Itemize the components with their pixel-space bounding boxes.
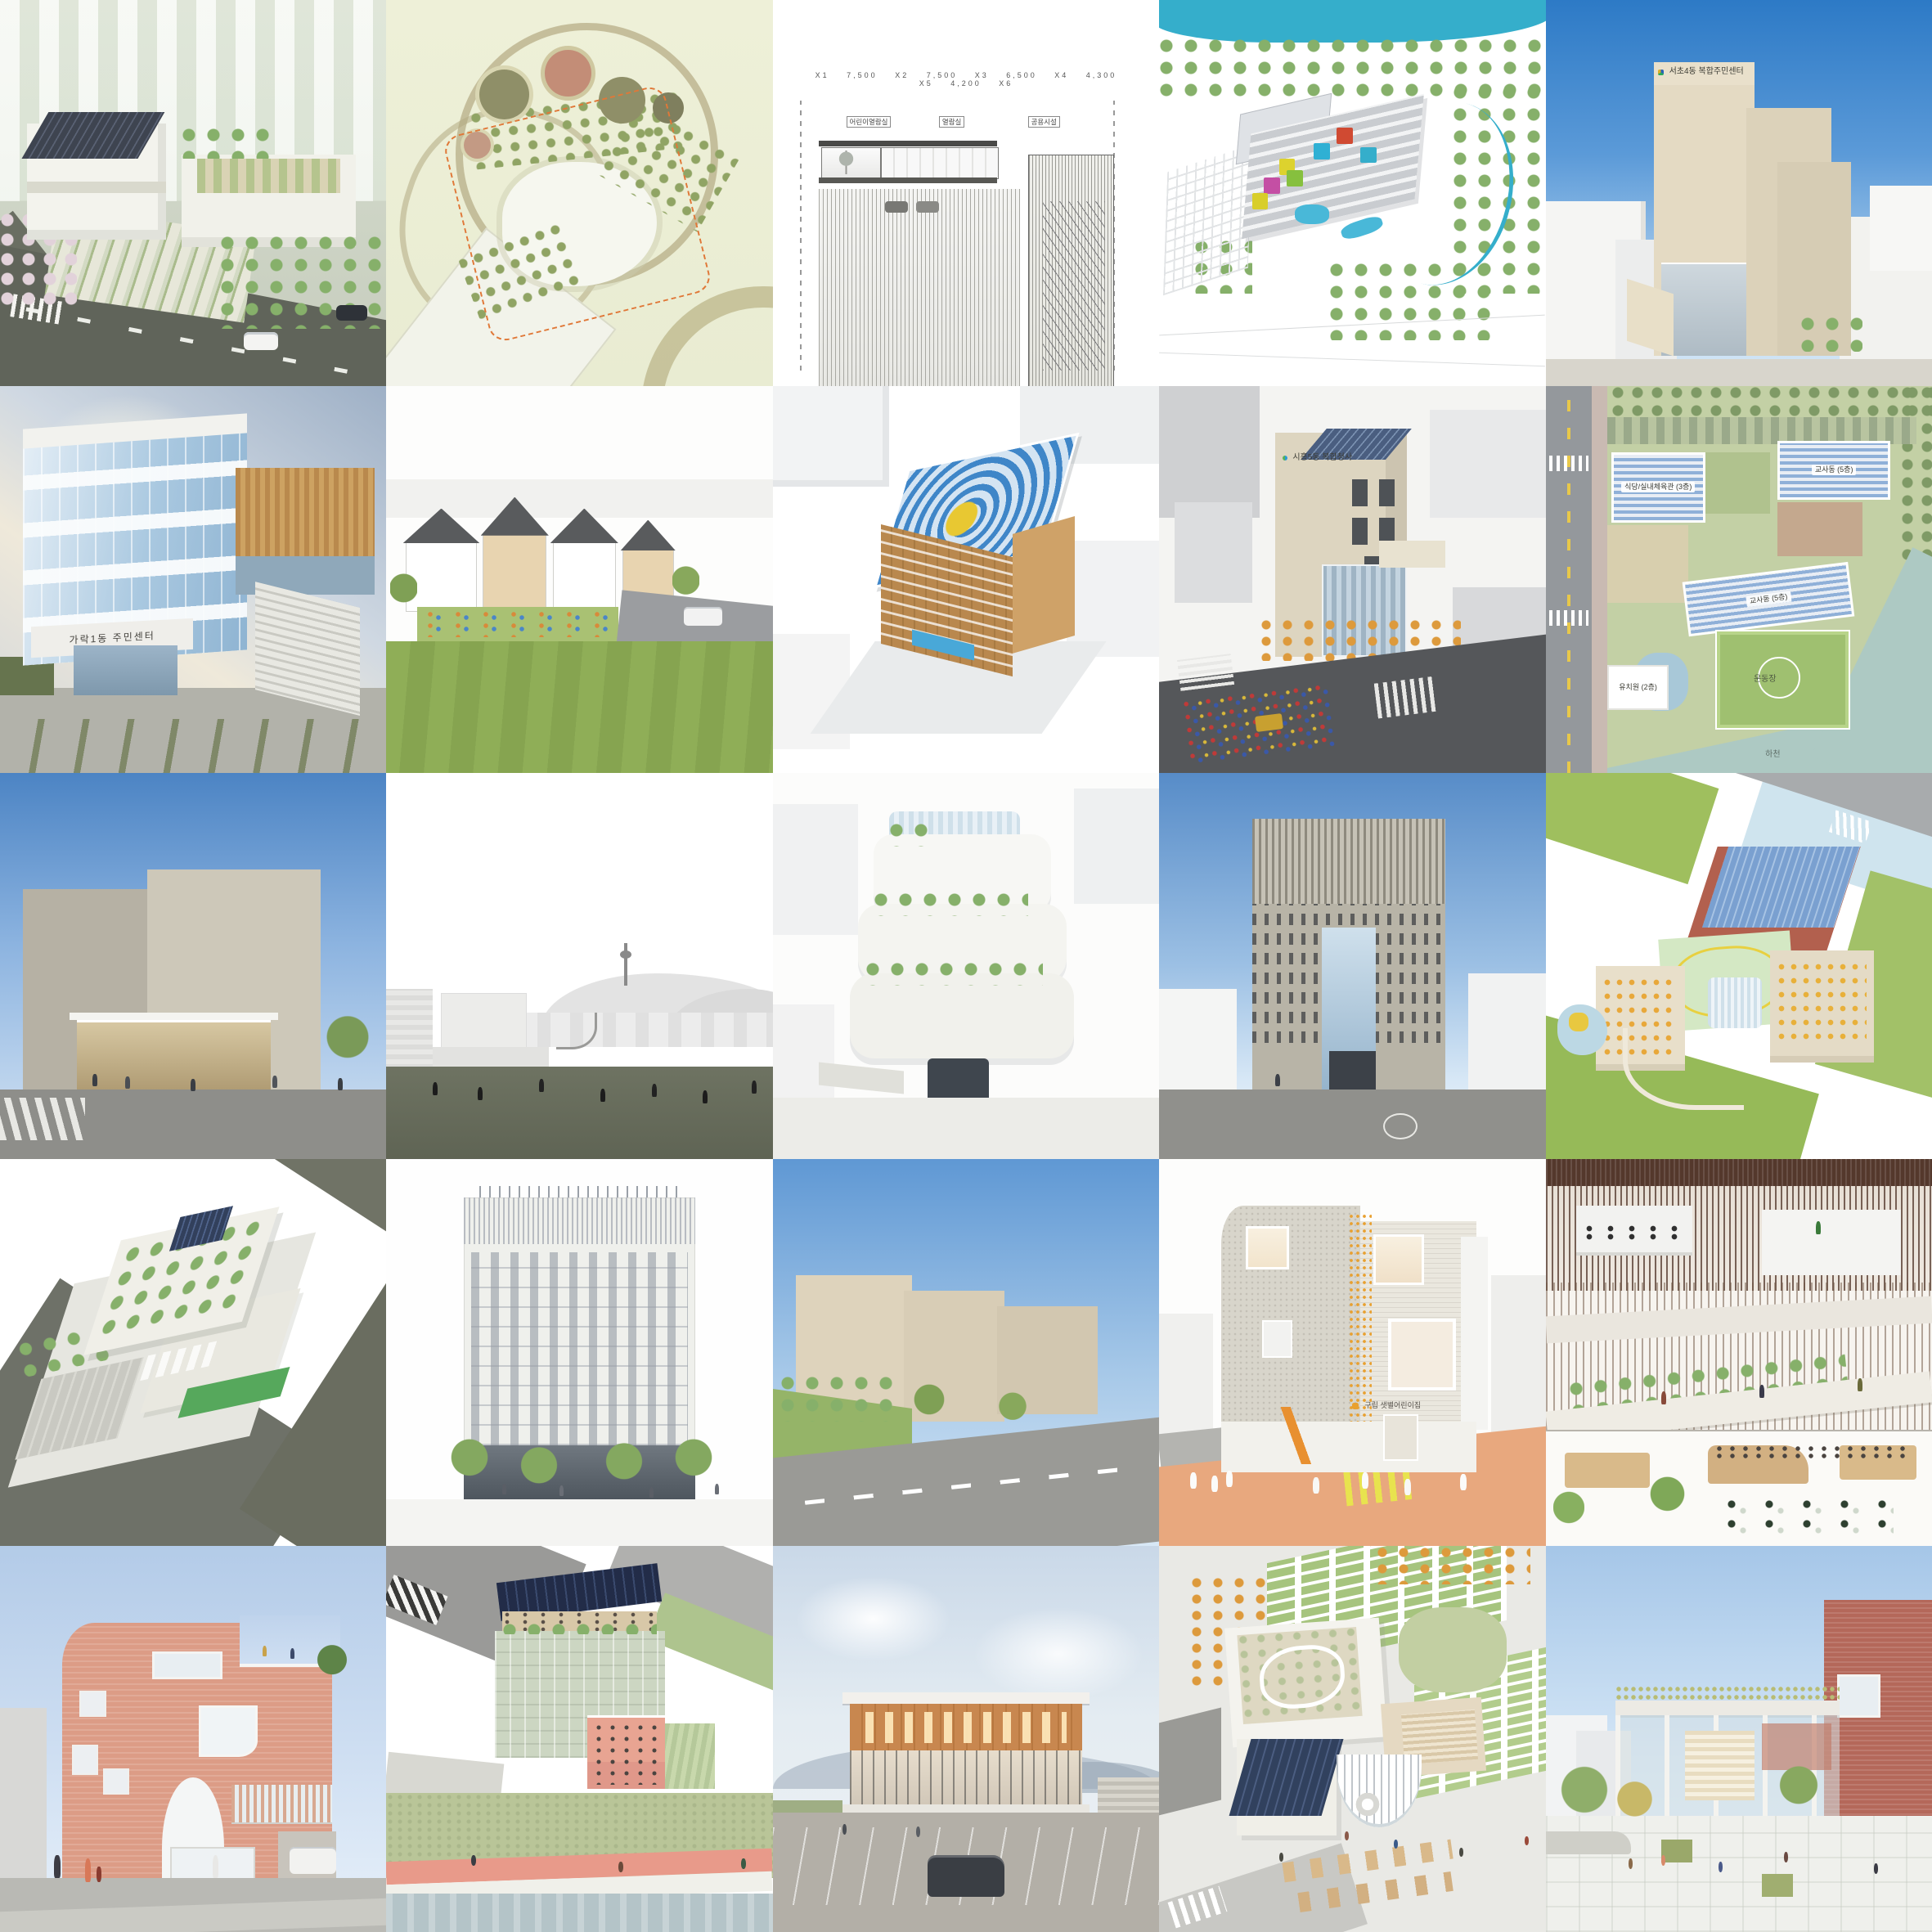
- tile-r1c2-park-masterplan: [386, 0, 772, 386]
- terrace-planting: [889, 823, 928, 846]
- context-block: [773, 1004, 835, 1105]
- floor-slab: [819, 177, 996, 183]
- play-yard: [1704, 452, 1769, 514]
- context-block: [773, 804, 858, 936]
- parked-car-lineart: [916, 201, 939, 213]
- entrance-door: [1383, 1414, 1418, 1461]
- tree: [997, 1391, 1028, 1434]
- cafe-tables: [595, 1723, 660, 1786]
- district-logo-icon: [1658, 70, 1664, 75]
- pedestrian: [54, 1855, 61, 1878]
- classroom-building: 교사동 (5층): [1777, 441, 1890, 500]
- cloud: [796, 1576, 950, 1661]
- white-car: [290, 1847, 336, 1874]
- play-lawn: [386, 1067, 772, 1159]
- street-trees: [1800, 317, 1862, 352]
- tile-r1c3-section-drawing: X1 7,500 X2 7,500 X3 6,500 X4 4,300 X5 4…: [773, 0, 1159, 386]
- label-field: 운동장: [1750, 671, 1780, 685]
- parked-car-lineart: [885, 201, 908, 213]
- terrace-deck: [1379, 541, 1445, 568]
- gabled-house-wood: [483, 533, 546, 612]
- pedestrian: [213, 1855, 219, 1878]
- planter-wall: [1546, 1831, 1631, 1854]
- terrace-planting: [874, 892, 1028, 915]
- building-sign-text: 구립 샛별어린이집: [1361, 1400, 1424, 1411]
- terrace-tree: [317, 1642, 348, 1681]
- green-paving-square: [1762, 1874, 1793, 1897]
- white-figure-silhouettes: [1190, 1472, 1197, 1489]
- dark-slat-header: [1546, 1159, 1932, 1186]
- label-cafeteria: 식당/실내체육관 (3층): [1621, 482, 1695, 492]
- label-river-text: 하천: [1762, 749, 1783, 760]
- tile-r5c3-symmetric-cultural-center: [773, 1546, 1159, 1932]
- entrance-canopy: [70, 1013, 278, 1020]
- planter-band: [502, 1623, 657, 1634]
- tree: [912, 1383, 947, 1430]
- autumn-trees: [1376, 1546, 1530, 1584]
- tree: [518, 1445, 560, 1495]
- context-block: [1491, 1275, 1545, 1445]
- label-classroom-b: 교사동 (5층): [1746, 591, 1791, 607]
- green-terrace-steps: [665, 1723, 715, 1789]
- tile-r5c2-riverfront-green-building: [386, 1546, 772, 1932]
- checkered-green-roof: [197, 159, 340, 194]
- magenta-container: [1264, 177, 1280, 194]
- pavilion-roof-slab: [1615, 1701, 1840, 1716]
- perimeter-trees: [1592, 386, 1932, 421]
- curved-bay-window: [201, 1708, 255, 1755]
- window: [1248, 1229, 1287, 1267]
- verge-trees: [780, 1376, 896, 1422]
- crosswalk: [1549, 610, 1588, 626]
- ground-line: [1159, 353, 1545, 366]
- program-node: [545, 50, 591, 97]
- center-line: [1567, 386, 1571, 772]
- pedestrian: [1275, 1074, 1280, 1086]
- play-equipment-dots: [425, 610, 611, 637]
- building-sign-text: 가락1동 주민센터: [65, 628, 158, 646]
- wood-side-facade: [1013, 517, 1075, 654]
- tile-r3c5-kindergarten-axon: [1546, 773, 1932, 1159]
- tile-r1c4-container-campus-aerial: [1159, 0, 1545, 386]
- room-label-reading: 열람실: [939, 116, 964, 128]
- tile-r4c3-brick-housing-street: [773, 1159, 1159, 1545]
- grid-axis-dimensions: X1 7,500 X2 7,500 X3 6,500 X4 4,300 X5 4…: [804, 71, 1129, 88]
- balcony-railing: [231, 1785, 332, 1823]
- black-car: [336, 305, 367, 321]
- crosswalk: [1549, 456, 1588, 471]
- roof-frames: [479, 1186, 681, 1197]
- tile-r4c5-slat-section-interior: [1546, 1159, 1932, 1545]
- tile-r4c4-cube-daycare: 구립 샛별어린이집: [1159, 1159, 1545, 1545]
- street: [1159, 1090, 1545, 1159]
- building-sign: 서초4동 복합주민센터: [1658, 66, 1747, 78]
- tile-r5c1-salmon-brick-building: [0, 1546, 386, 1932]
- tile-r4c2-slatted-elevation: [386, 1159, 772, 1545]
- courtyard: [1777, 502, 1862, 556]
- white-car: [244, 332, 279, 349]
- sidewalk: [1546, 359, 1932, 386]
- building-sign: 시흥5동 복합청사: [1283, 452, 1355, 464]
- tile-r1c1-civic-complex-aerial: [0, 0, 386, 386]
- tile-r2c3-wood-axon-mural-roof: [773, 386, 1159, 772]
- cyclists: [471, 1855, 476, 1866]
- children-silhouettes: [433, 1082, 438, 1095]
- facade-band: [27, 182, 166, 193]
- screen-facade-hatch: [819, 189, 1020, 386]
- window-grid: [471, 1252, 688, 1445]
- foreground-lawn: [386, 641, 772, 773]
- sidewalk: [386, 1499, 772, 1546]
- context-block: [1074, 789, 1159, 905]
- crosswalk: [1177, 654, 1234, 691]
- terrace-planting: [865, 962, 1043, 985]
- context-building: [1870, 186, 1932, 271]
- wood-counter: [1565, 1453, 1650, 1488]
- white-car: [684, 607, 722, 627]
- pedestrian: [85, 1858, 92, 1881]
- brick-screen-wall: [386, 989, 433, 1074]
- namsan-tower-deck: [620, 950, 631, 959]
- play-structure: [1569, 1013, 1588, 1032]
- lawn-mound: [1399, 1607, 1507, 1692]
- river-water: [386, 1894, 772, 1932]
- blue-play-pool: [1295, 204, 1330, 224]
- interior-tree-lineart: [838, 151, 854, 173]
- building-sign-text: 서초4동 복합주민센터: [1666, 66, 1747, 78]
- entrance-void: [928, 1058, 990, 1097]
- glass-base: [850, 1750, 1081, 1804]
- building-sign: 구립 샛별어린이집: [1352, 1400, 1424, 1411]
- entrance: [1329, 1051, 1376, 1090]
- red-container: [1337, 128, 1353, 144]
- room-label-shared: 공용시설: [1028, 116, 1060, 128]
- tree: [1553, 1491, 1584, 1538]
- vertical-louvre-crown: [1252, 819, 1445, 904]
- kindergarten-building: 유치원 (2층): [1607, 665, 1669, 711]
- window: [105, 1770, 128, 1793]
- label-field-text: 운동장: [1750, 674, 1780, 685]
- window: [1352, 518, 1368, 545]
- orange-window-frames: [1777, 962, 1867, 1047]
- upper-walkway: [1762, 1210, 1901, 1275]
- tile-r3c4-louvre-crown-building: [1159, 773, 1545, 1159]
- roof-slab: [819, 141, 996, 146]
- outdoor-tables: [1723, 1499, 1894, 1534]
- upper-glazing: [881, 147, 999, 180]
- window: [1264, 1322, 1291, 1357]
- window: [1352, 479, 1368, 506]
- tile-r3c3-white-curved-terraces: [773, 773, 1159, 1159]
- glass-base: [464, 1445, 695, 1499]
- stair-window-strip: [1461, 1237, 1488, 1430]
- label-river: 하천: [1762, 746, 1783, 761]
- green-paving-strips: [0, 719, 386, 773]
- bird-logo-icon: [1352, 1403, 1359, 1409]
- terrace-people: [263, 1646, 267, 1656]
- cloud: [973, 1607, 1143, 1700]
- green-container: [1287, 170, 1303, 186]
- tile-r2c1-glass-community-center: 가락1동 주민센터: [0, 386, 386, 772]
- namsan-tower-mast: [624, 943, 627, 986]
- window: [1376, 1237, 1422, 1283]
- accessible-parking-marking: [1383, 1113, 1418, 1139]
- tile-r5c5-brick-glass-pavilion-plaza: [1546, 1546, 1932, 1932]
- people-on-ramp: [1661, 1391, 1666, 1404]
- tile-r3c2-monochrome-playground: [386, 773, 772, 1159]
- pedestrians: [842, 1824, 847, 1835]
- window: [1840, 1677, 1878, 1715]
- stair-flights: [1043, 201, 1105, 371]
- tile-r2c5-school-site-plan: 식당/실내체육관 (3층) 교사동 (5층) 교사동 (5층) 유치원 (2층)…: [1546, 386, 1932, 772]
- site-stair: [1098, 1777, 1160, 1816]
- round-plaza-motif: [1352, 1793, 1383, 1816]
- lawn: [1546, 773, 1719, 884]
- glass-lobby: [77, 1020, 270, 1090]
- window: [74, 1746, 97, 1773]
- interior-stepped-seating: [1685, 1731, 1755, 1800]
- flat-roof-slab: [842, 1692, 1090, 1704]
- child-pedestrian: [97, 1867, 101, 1882]
- tile-r1c5-beige-civic-tower: 서초4동 복합주민센터: [1546, 0, 1932, 386]
- window: [1379, 479, 1395, 506]
- glass-entrance: [74, 645, 178, 695]
- classroom-building: 교사동 (5층): [1682, 562, 1854, 637]
- label-classroom-a: 교사동 (5층): [1812, 465, 1857, 475]
- boundary-dashed-line: [800, 101, 802, 371]
- tree: [390, 572, 417, 618]
- orange-slide: [1279, 1407, 1314, 1465]
- context-block: [773, 386, 889, 487]
- context-block: [0, 1708, 47, 1885]
- context-block: [1067, 541, 1159, 657]
- glass-podium: [1661, 263, 1746, 355]
- cyan-container: [1314, 143, 1330, 160]
- bay-window: [1391, 1322, 1453, 1387]
- autumn-tree: [1615, 1777, 1654, 1831]
- entry-plaza: [1607, 525, 1688, 602]
- crosswalk: [0, 1098, 85, 1140]
- lounge-chairs: [1584, 1224, 1685, 1240]
- visitors: [1345, 1831, 1349, 1840]
- roof-terrace-trees: [182, 128, 274, 159]
- glass-courtyard: [1708, 977, 1762, 1027]
- lake-band: [1159, 0, 1545, 43]
- tree: [1557, 1762, 1611, 1831]
- window: [81, 1692, 104, 1715]
- street-ground: [773, 1098, 1159, 1160]
- tree: [1777, 1762, 1820, 1820]
- royal-carriage: [1255, 713, 1283, 732]
- context-block: [1430, 410, 1546, 518]
- lower-floor-slab: [850, 973, 1074, 1058]
- tree: [1650, 1476, 1685, 1526]
- city-logo-icon: [1283, 456, 1287, 461]
- tree: [672, 1437, 715, 1487]
- tile-r4c1-l-building-axon: [0, 1159, 386, 1545]
- parking-lot: [1159, 1708, 1221, 1816]
- ribbon-window: [155, 1654, 220, 1677]
- tree: [603, 1441, 645, 1491]
- sidewalk: [1592, 386, 1607, 772]
- label-kindergarten: 유치원 (2층): [1615, 682, 1660, 693]
- tile-r2c2-pitched-roof-houses: [386, 386, 772, 772]
- tile-r2c4-tower-with-parade: 시흥5동 복합청사: [1159, 386, 1545, 772]
- gabled-house: [553, 541, 617, 612]
- tree: [448, 1437, 491, 1487]
- context-block: [1159, 386, 1260, 518]
- lit-upper-windows: [865, 1712, 1067, 1743]
- building-sign-text: 시흥5동 복합청사: [1289, 452, 1355, 464]
- context-block: [1175, 502, 1251, 603]
- tile-r3c1-grey-civic-corner: [0, 773, 386, 1159]
- street-tree: [325, 1013, 371, 1082]
- tile-r5c4-market-garden-hub: [1159, 1546, 1545, 1932]
- ground-floor: [1221, 1422, 1476, 1471]
- yellow-container: [1252, 193, 1269, 209]
- cafeteria-gym-building: 식당/실내체육관 (3층): [1611, 452, 1705, 523]
- counter-goods: [1715, 1445, 1908, 1461]
- room-label-kids-reading: 어린이열람실: [847, 116, 892, 128]
- render-collage-grid: X1 7,500 X2 7,500 X3 6,500 X4 4,300 X5 4…: [0, 0, 1932, 1932]
- walking-person: [1816, 1221, 1821, 1234]
- plinth: [842, 1804, 1090, 1812]
- pedestrians: [92, 1074, 97, 1086]
- green-paving-square: [1661, 1840, 1692, 1862]
- top-floor-slats: [464, 1197, 695, 1244]
- pedestrians: [502, 1484, 506, 1494]
- glass-facade-line: [1546, 1430, 1932, 1431]
- dark-car: [928, 1855, 1004, 1898]
- plaza-people: [1661, 1855, 1665, 1866]
- cyan-container: [1360, 147, 1377, 164]
- curved-glass-front: [1337, 1755, 1422, 1828]
- solar-roof-array: [1702, 847, 1860, 928]
